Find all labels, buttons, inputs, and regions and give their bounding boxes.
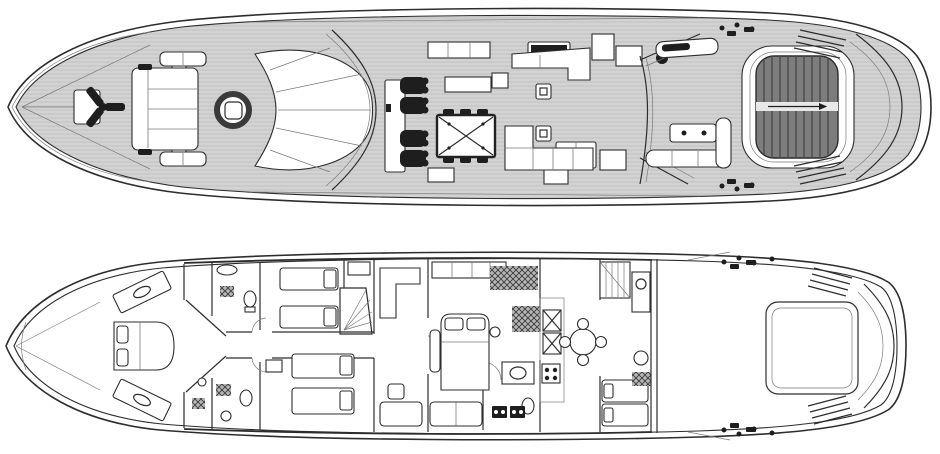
sink [217,265,237,275]
shower-hatched [216,384,231,396]
nightstand [266,360,282,372]
locker-hatched [192,398,205,409]
master-bed [441,314,489,390]
lower-deck-plan: Lower deck accommodation plan [6,252,906,440]
vip-pillow [117,349,128,366]
main-deck-plan: Main deck and flybridge plan [8,8,931,205]
pillow [340,356,352,375]
pillow [604,408,613,422]
pillow [324,308,336,326]
pillow [324,270,336,288]
foredeck-round-table [217,94,249,126]
stern-sun-lounger [742,46,854,168]
vanity [502,362,534,384]
vip-pillow [117,326,128,343]
pillow [445,318,463,330]
cupboard-hatched [220,286,234,297]
toilet [634,351,648,365]
deck-plan-drawing: Main deck and flybridge plan [0,0,940,454]
master-sofa [430,330,440,372]
stove [542,364,560,383]
chair [578,319,589,330]
toilet-tank [245,307,255,312]
vip-bed [114,322,174,370]
toilet [240,390,252,406]
chair [596,337,607,348]
foredeck-bench [132,64,198,155]
chair [578,355,589,366]
dining-table [437,109,495,163]
shower-hatched [512,306,540,332]
cockpit-table [670,124,716,142]
pillow [604,384,613,398]
counter [632,272,650,312]
bedside-table [490,327,500,337]
shower-hatched [632,372,651,386]
pillow [467,318,485,330]
toilet [244,291,256,307]
stool [388,384,404,399]
closet [348,262,370,275]
sink-small [198,378,206,386]
closet-hatched [490,266,538,290]
sink [221,411,231,421]
bench [380,402,422,426]
crew-stairs [600,262,630,298]
yacht-deck-plans: Main deck and flybridge plan [0,0,940,454]
chair [560,337,571,348]
pillow [340,391,352,410]
crew-table [570,329,596,355]
